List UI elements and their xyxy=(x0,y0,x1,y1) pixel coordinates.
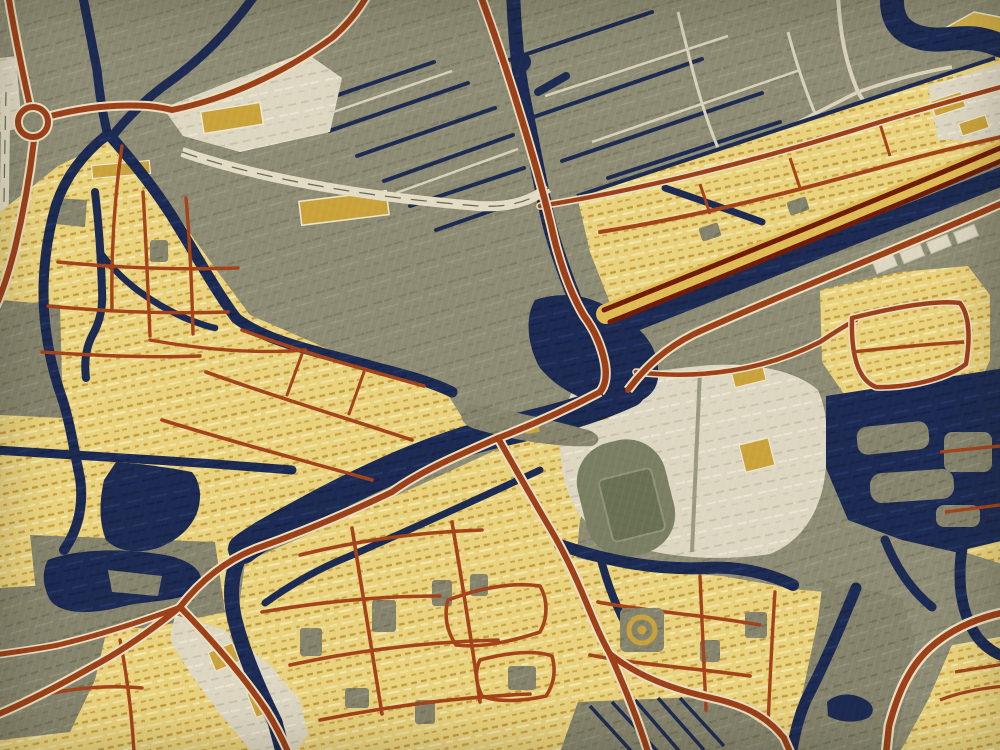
map-canvas xyxy=(0,0,1000,750)
courtyard-block xyxy=(150,240,168,262)
plaza-center xyxy=(638,626,647,635)
courtyard-block xyxy=(300,628,322,656)
lake-island xyxy=(869,468,955,504)
courtyard-block xyxy=(508,666,536,690)
map-artwork-stage xyxy=(0,0,1000,750)
courtyard-block xyxy=(372,600,396,632)
courtyard-block xyxy=(345,688,369,708)
canal-north-pool xyxy=(511,52,531,72)
